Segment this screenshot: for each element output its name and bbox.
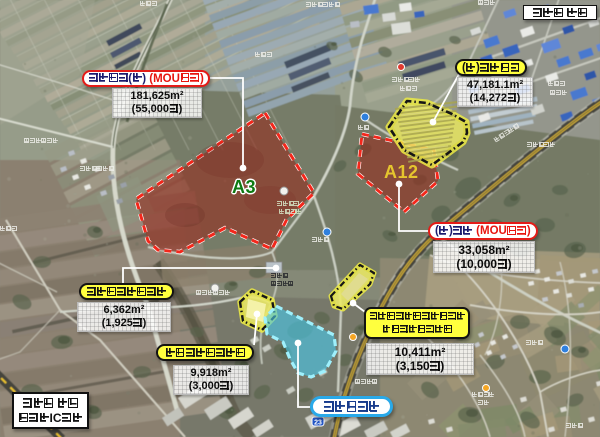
svg-text:23: 23 bbox=[314, 420, 322, 427]
